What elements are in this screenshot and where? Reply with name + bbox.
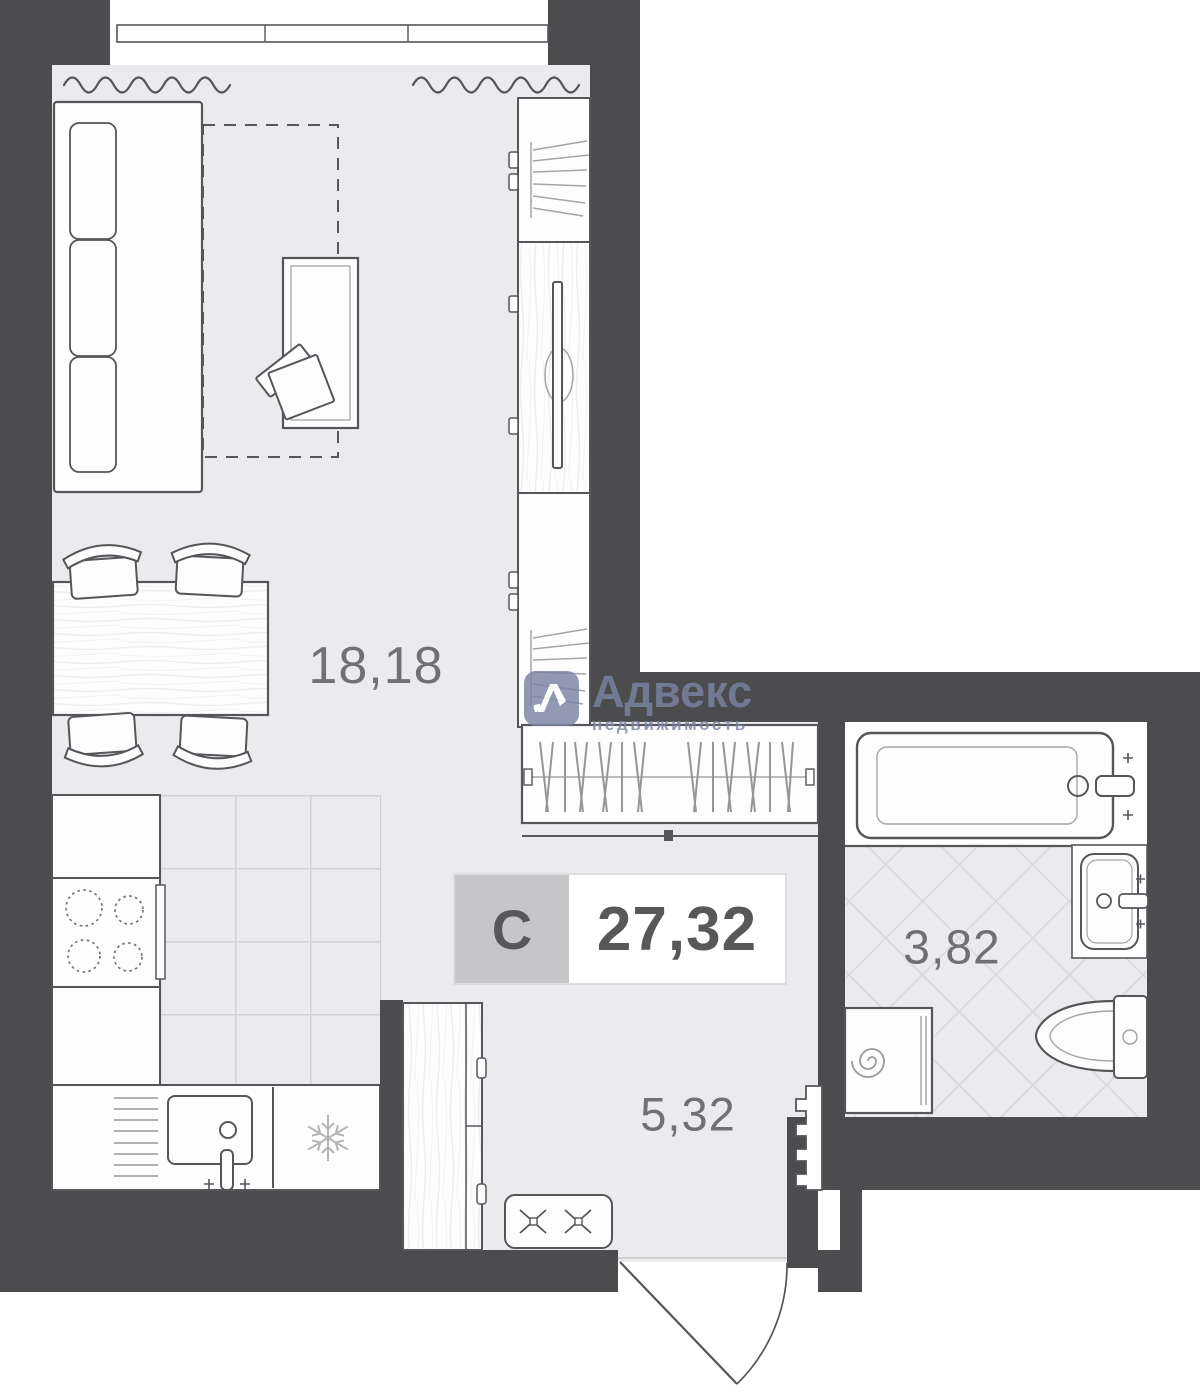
washbasin (1072, 845, 1148, 958)
cabinet-handles (509, 152, 518, 610)
toilet (1036, 996, 1147, 1078)
kitchen-counter (52, 795, 165, 1085)
watermark: Адвекс недвижимость (524, 671, 752, 735)
washing-machine (845, 1008, 932, 1113)
watermark-subtitle: недвижимость (592, 715, 752, 735)
kitchen-lower-row (52, 1085, 380, 1190)
window (117, 25, 548, 42)
curtains (64, 78, 579, 93)
dining-table (53, 582, 268, 715)
bench-stool (505, 1195, 612, 1248)
advex-logo-icon (524, 671, 579, 726)
dining-chair (173, 715, 254, 771)
hall-wardrobe (403, 1003, 486, 1250)
bathroom-area-label: 3,82 (903, 921, 1000, 976)
unit-area-badge: С 27,32 (453, 873, 787, 985)
unit-total-area: 27,32 (569, 875, 785, 983)
dining-chair (62, 712, 143, 769)
entry-door (618, 1258, 787, 1384)
floor-plan: 18,18 5,32 3,82 С 27,32 Адвекс недвижимо… (0, 0, 1200, 1388)
closet-hangers (522, 725, 818, 841)
sofa (54, 102, 202, 492)
towel-radiator (796, 1086, 822, 1190)
bathtub (845, 733, 1147, 846)
bookshelf (509, 98, 590, 727)
hallway-area-label: 5,32 (640, 1087, 735, 1142)
watermark-brand: Адвекс (592, 671, 752, 712)
coffee-table (256, 258, 358, 428)
living-room-area-label: 18,18 (308, 636, 443, 696)
unit-type-letter: С (455, 875, 569, 983)
dining-chair (63, 543, 144, 600)
dining-chair (170, 542, 251, 598)
